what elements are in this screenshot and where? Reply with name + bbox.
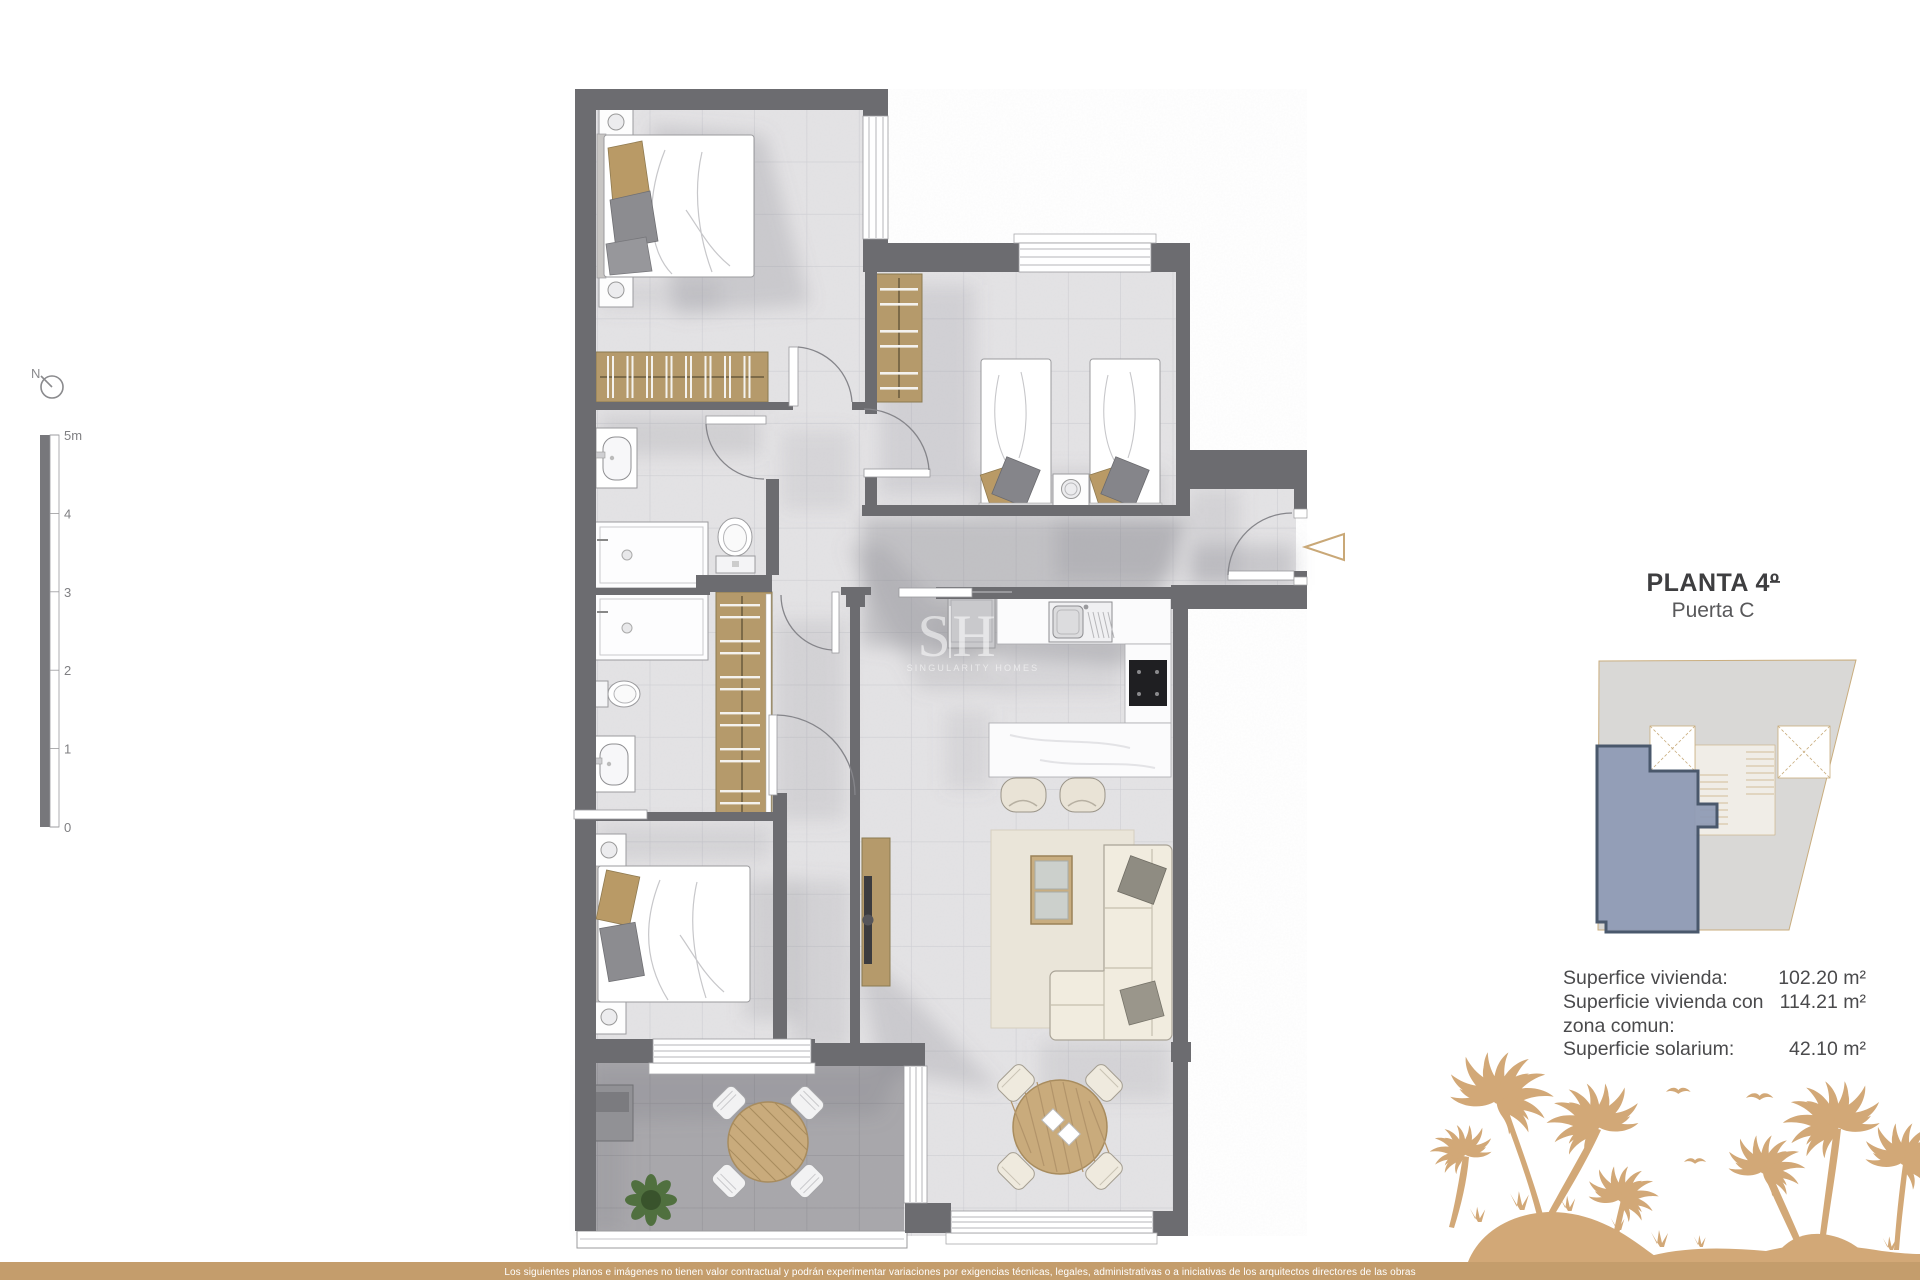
svg-text:Superficie solarium:: Superficie solarium: bbox=[1563, 1038, 1734, 1060]
svg-text:4: 4 bbox=[64, 506, 71, 521]
svg-text:Puerta C: Puerta C bbox=[1672, 599, 1755, 622]
svg-text:102.20 m²: 102.20 m² bbox=[1778, 967, 1866, 989]
svg-text:2: 2 bbox=[64, 663, 71, 678]
svg-text:42.10 m²: 42.10 m² bbox=[1789, 1038, 1866, 1060]
svg-text:PLANTA 4º: PLANTA 4º bbox=[1646, 569, 1779, 597]
svg-text:5m: 5m bbox=[64, 428, 82, 443]
svg-text:3: 3 bbox=[64, 585, 71, 600]
svg-text:0: 0 bbox=[64, 820, 71, 835]
svg-text:zona comun:: zona comun: bbox=[1563, 1015, 1675, 1037]
svg-text:SINGULARITY HOMES: SINGULARITY HOMES bbox=[907, 663, 1040, 673]
svg-text:Superficie vivienda con: Superficie vivienda con bbox=[1563, 991, 1764, 1013]
svg-text:N: N bbox=[31, 366, 40, 381]
svg-text:H: H bbox=[952, 603, 995, 669]
svg-text:Los siguientes planos e imágen: Los siguientes planos e imágenes no tien… bbox=[504, 1267, 1415, 1278]
svg-text:S: S bbox=[917, 603, 950, 669]
svg-text:1: 1 bbox=[64, 742, 71, 757]
svg-text:Superfice vivienda:: Superfice vivienda: bbox=[1563, 967, 1728, 989]
svg-text:114.21 m²: 114.21 m² bbox=[1780, 991, 1867, 1013]
